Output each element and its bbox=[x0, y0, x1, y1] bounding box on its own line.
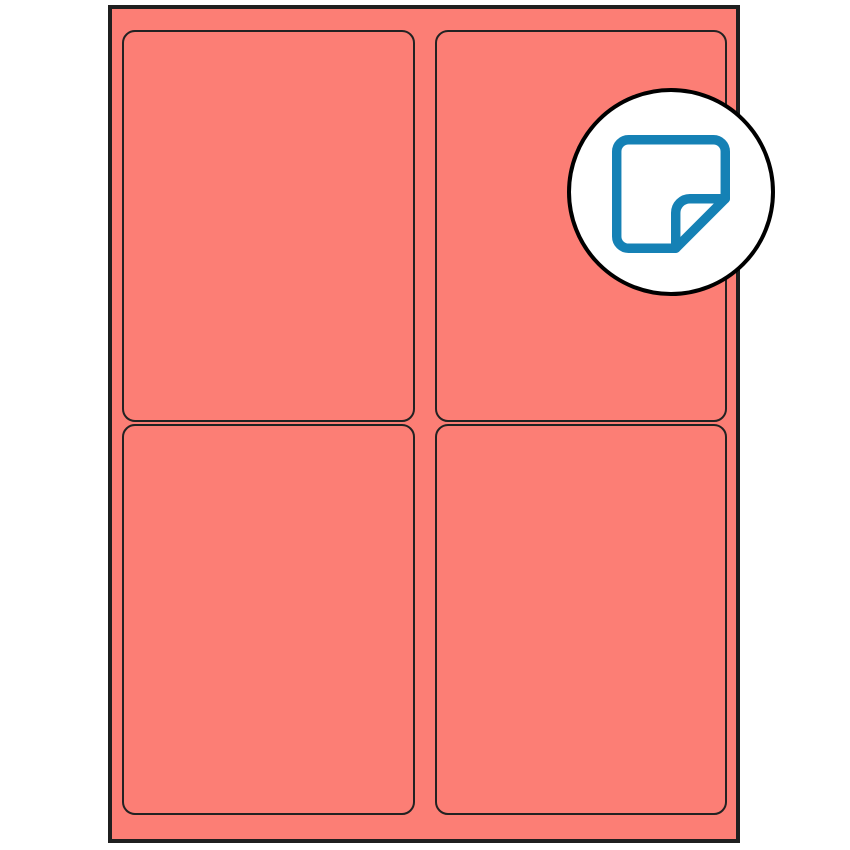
sticker-badge bbox=[567, 88, 775, 296]
label-cell-r2c1 bbox=[122, 424, 415, 816]
label-cell-r1c1 bbox=[122, 30, 415, 422]
label-sheet-preview bbox=[0, 0, 850, 850]
label-cell-r2c2 bbox=[435, 424, 728, 816]
sticker-icon bbox=[612, 135, 730, 253]
